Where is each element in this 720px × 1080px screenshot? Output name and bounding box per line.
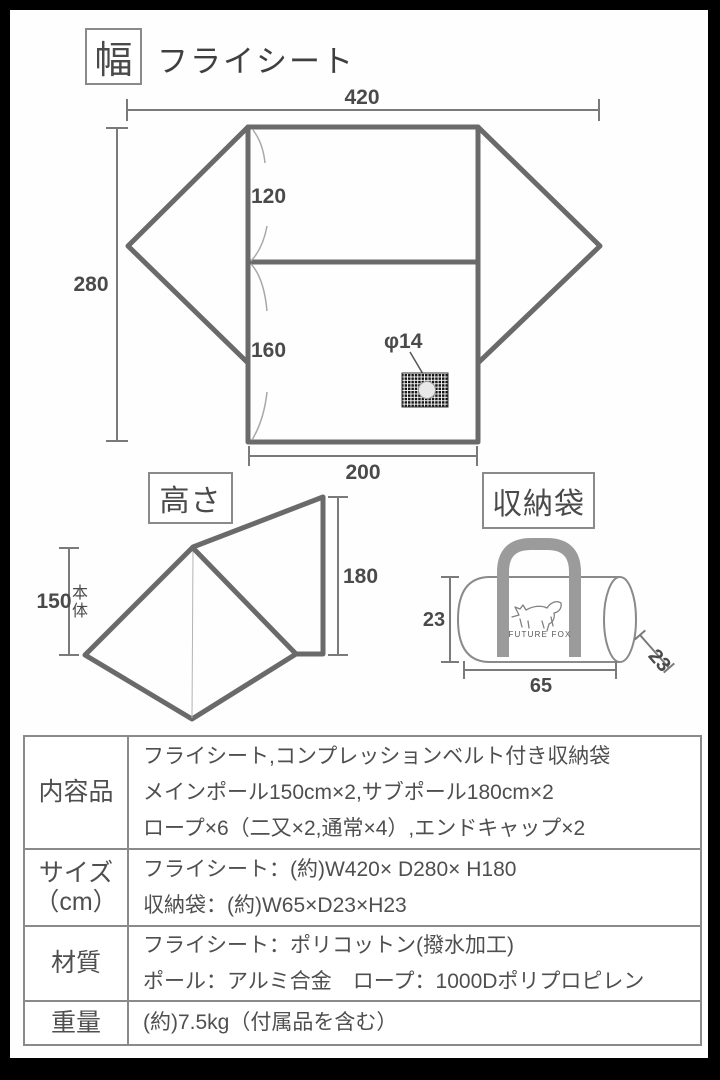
- spec-row-label: 内容品: [25, 737, 129, 848]
- spec-row-label: サイズ （cm）: [25, 848, 129, 925]
- dim-bag-width: 65: [530, 675, 552, 697]
- row-label-text: サイズ: [39, 859, 113, 888]
- dim-120: 120: [251, 185, 286, 208]
- spec-table: 内容品 フライシート,コンプレッションベルト付き収納袋 メインポール150cm×…: [23, 735, 702, 1046]
- vent-hole: [419, 382, 436, 399]
- spec-row-value: フライシート：ポリコットン(撥水加工) ポール：アルミ合金 ロープ：1000Dポ…: [129, 925, 700, 1000]
- vent-label: φ14: [384, 330, 423, 353]
- row-label-text: 内容品: [38, 778, 113, 807]
- spec-line: ポール：アルミ合金 ロープ：1000Dポリプロピレン: [143, 964, 700, 1000]
- dim-280: 280: [73, 273, 108, 296]
- spec-line: フライシート：ポリコットン(撥水加工): [143, 928, 700, 964]
- spec-line: メインポール150cm×2,サブポール180cm×2: [143, 775, 700, 811]
- spec-line: ロープ×6（二又×2,通常×4）,エンドキャップ×2: [143, 811, 700, 847]
- row-label-text2: （cm）: [34, 888, 117, 917]
- flysheet-diagram: 420 280 120 160 φ14: [73, 86, 600, 484]
- spec-row-value: (約)7.5kg（付属品を含む）: [129, 1000, 700, 1044]
- bag-end: [604, 577, 636, 662]
- spec-line: 収納袋：(約)W65×D23×H23: [143, 888, 700, 924]
- dim-160: 160: [251, 339, 286, 362]
- spec-row-label: 重量: [25, 1000, 129, 1044]
- spec-line: (約)7.5kg（付属品を含む）: [143, 1005, 700, 1041]
- row-label-text: 材質: [51, 949, 101, 978]
- dim-200: 200: [345, 461, 380, 484]
- spec-line: フライシート,コンプレッションベルト付き収納袋: [143, 739, 700, 775]
- left-flap: [128, 127, 248, 363]
- dim-150: 150: [36, 590, 71, 613]
- height-diagram: 150 180: [36, 497, 378, 719]
- storage-bag-diagram: FUTURE FOX 23 65 23: [423, 544, 675, 697]
- dim-180: 180: [343, 565, 378, 588]
- spec-row-value: フライシート,コンプレッションベルト付き収納袋 メインポール150cm×2,サブ…: [129, 737, 700, 848]
- brand-text: FUTURE FOX: [508, 630, 571, 639]
- dim-bag-height: 23: [423, 609, 445, 631]
- right-flap: [478, 127, 600, 363]
- tent-profile: [85, 497, 323, 719]
- dim-bag-depth: 23: [644, 645, 675, 676]
- spec-sheet: 幅 フライシート 高さ 収納袋 本体 420 280: [0, 0, 720, 1080]
- dim-420: 420: [344, 86, 379, 109]
- spec-row-label: 材質: [25, 925, 129, 1000]
- bag-body: [458, 577, 620, 662]
- spec-row-value: フライシート：(約)W420× D280× H180 収納袋：(約)W65×D2…: [129, 848, 700, 925]
- spec-line: フライシート：(約)W420× D280× H180: [143, 852, 700, 888]
- row-label-text: 重量: [51, 1009, 101, 1038]
